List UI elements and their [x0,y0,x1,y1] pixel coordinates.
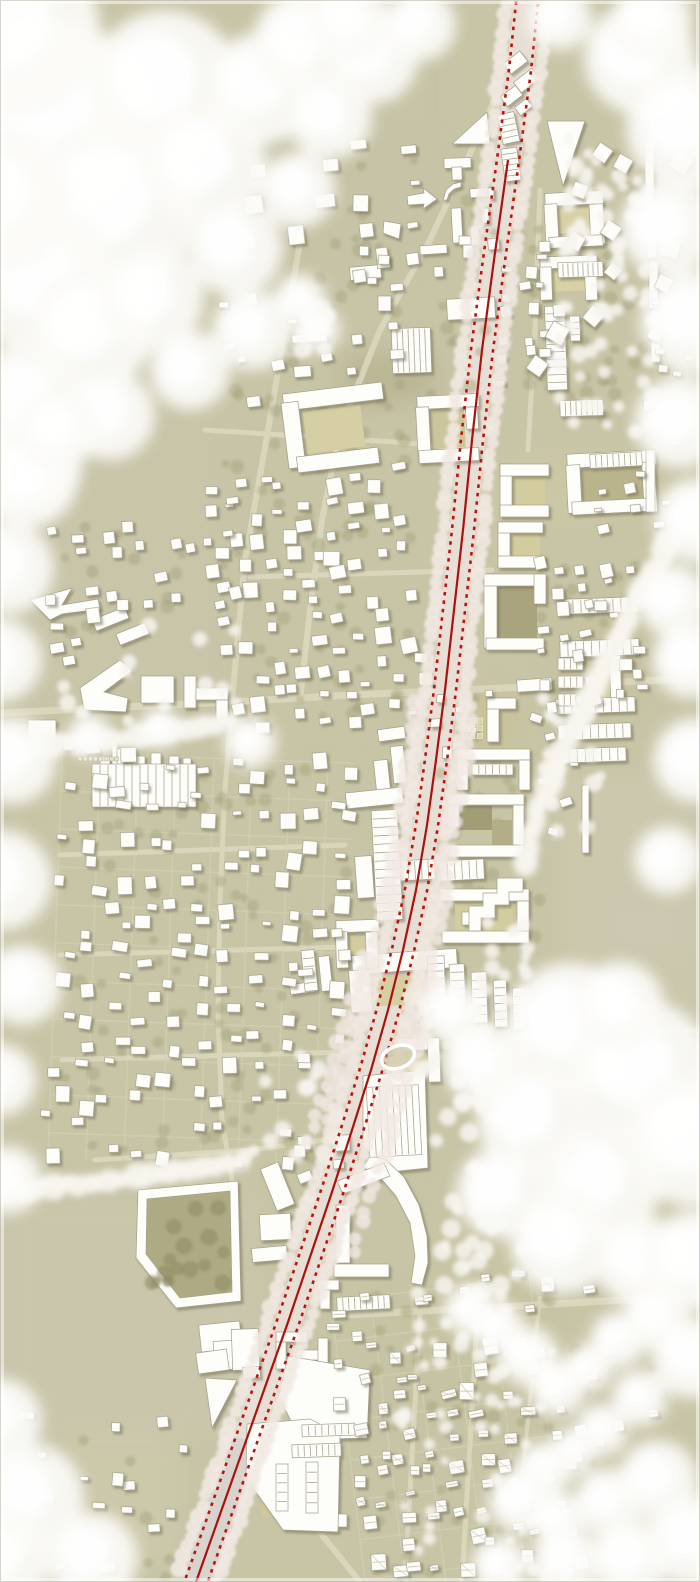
masterplan-svg [0,0,700,1582]
masterplan-board [0,0,700,1582]
